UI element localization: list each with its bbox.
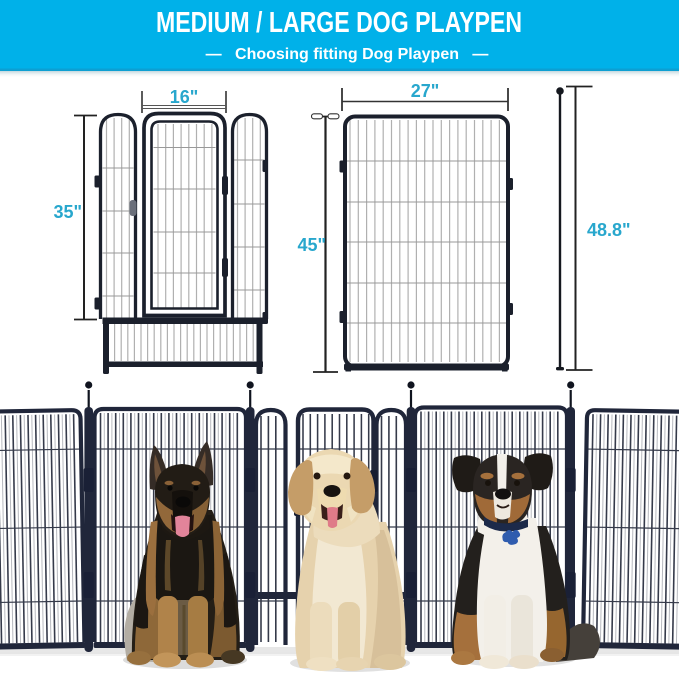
- svg-text:48.8": 48.8": [587, 220, 631, 240]
- svg-text:45": 45": [297, 235, 326, 255]
- svg-text:27": 27": [411, 81, 440, 101]
- svg-text:35": 35": [53, 202, 82, 222]
- svg-text:— Choosing fitting Dog Playp: — Choosing fitting Dog Playpen —: [206, 46, 489, 63]
- svg-text:16": 16": [170, 87, 199, 107]
- svg-text:MEDIUM / LARGE DOG PLAYPEN: MEDIUM / LARGE DOG PLAYPEN: [156, 7, 522, 39]
